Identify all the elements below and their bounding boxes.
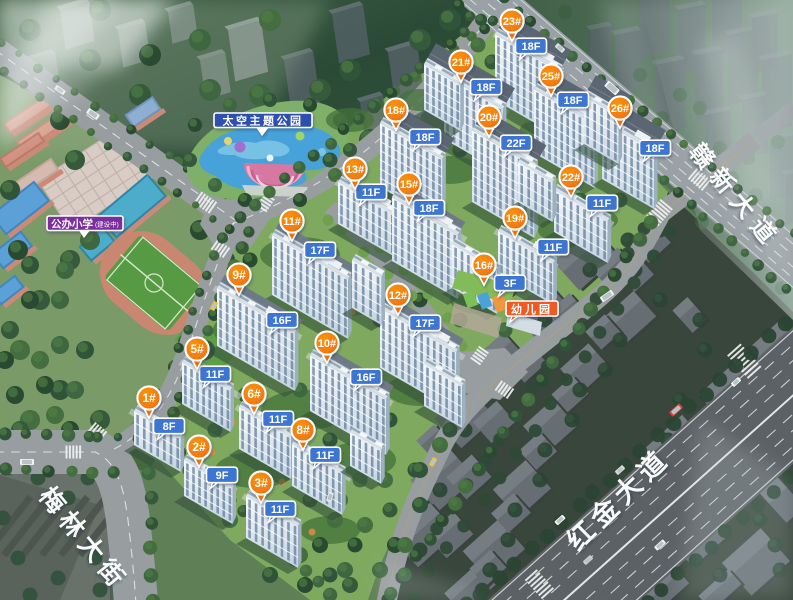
svg-text:公办小学: 公办小学 [51,218,93,231]
svg-text:太空主题公园: 太空主题公园 [222,114,304,128]
svg-text:18F: 18F [522,41,541,53]
svg-text:16F: 16F [273,315,292,327]
svg-text:5#: 5# [190,342,204,356]
svg-text:18#: 18# [387,105,405,117]
svg-text:18F: 18F [646,143,665,155]
svg-text:12#: 12# [389,290,407,302]
svg-text:11F: 11F [269,414,288,426]
svg-text:11F: 11F [362,187,381,199]
svg-text:9F: 9F [216,470,229,482]
svg-text:23#: 23# [503,16,521,28]
svg-text:11F: 11F [593,198,612,210]
svg-text:16#: 16# [475,260,493,272]
svg-text:3F: 3F [504,278,517,290]
svg-text:15#: 15# [400,179,418,191]
svg-text:9#: 9# [232,268,246,282]
svg-text:25#: 25# [542,71,560,83]
svg-text:1#: 1# [142,391,156,405]
svg-text:2#: 2# [192,440,206,454]
svg-text:26#: 26# [611,103,629,115]
svg-text:18F: 18F [420,203,439,215]
svg-text:8#: 8# [296,423,310,437]
svg-text:幼儿园: 幼儿园 [511,302,553,316]
svg-text:3#: 3# [254,476,268,490]
svg-text:10#: 10# [318,338,336,350]
svg-text:11F: 11F [316,450,335,462]
svg-text:18F: 18F [477,82,496,94]
svg-text:21#: 21# [452,57,470,69]
svg-text:17F: 17F [416,318,435,330]
svg-text:8F: 8F [163,421,176,433]
svg-text:18F: 18F [416,132,435,144]
svg-text:6#: 6# [247,387,261,401]
svg-text:11F: 11F [271,504,290,516]
svg-text:18F: 18F [564,95,583,107]
svg-text:13#: 13# [346,164,364,176]
svg-text:16F: 16F [357,372,376,384]
svg-text:11F: 11F [544,242,563,254]
svg-text:(建设中): (建设中) [95,220,119,229]
svg-text:20#: 20# [480,112,498,124]
svg-text:11#: 11# [283,216,301,228]
svg-text:19#: 19# [506,213,524,225]
svg-text:11F: 11F [206,369,225,381]
svg-text:17F: 17F [311,245,330,257]
svg-text:22#: 22# [562,172,580,184]
svg-text:22F: 22F [507,138,526,150]
